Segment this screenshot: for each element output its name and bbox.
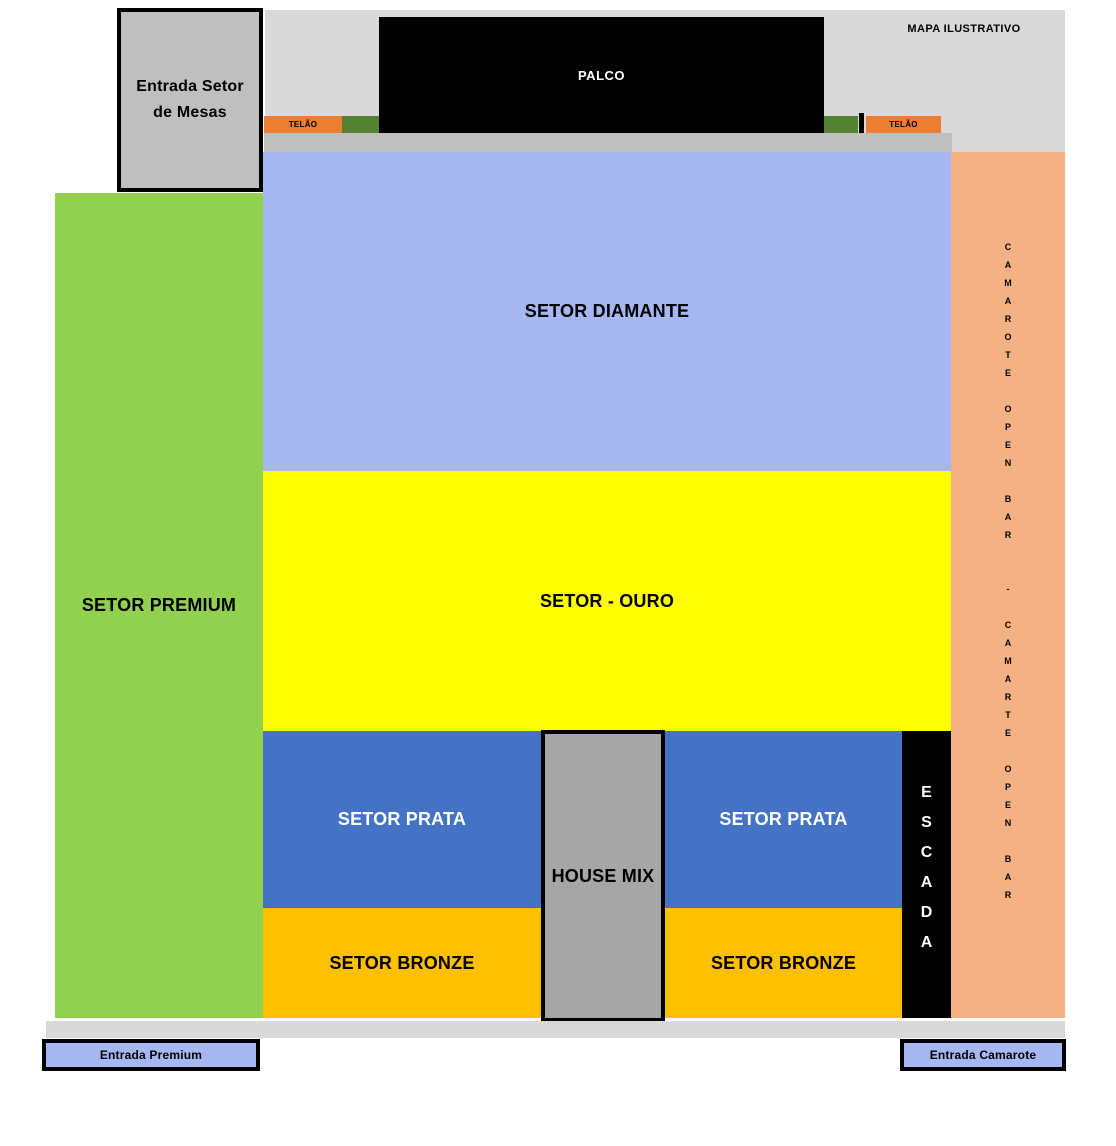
entrance-premium: Entrada Premium xyxy=(42,1039,260,1071)
screen-left-label: TELÃO xyxy=(289,120,318,129)
sector-bronze-right-label: SETOR BRONZE xyxy=(711,953,856,974)
sector-bronze-right: SETOR BRONZE xyxy=(665,908,902,1018)
sector-prata-right-label: SETOR PRATA xyxy=(719,809,847,830)
entrance-mesas: Entrada Setor de Mesas xyxy=(117,8,263,192)
sector-ouro-label: SETOR - OURO xyxy=(540,591,674,612)
house-mix-booth: HOUSE MIX xyxy=(541,730,665,1022)
sector-bronze-left-label: SETOR BRONZE xyxy=(329,953,474,974)
screen-right: TELÃO xyxy=(866,116,941,133)
sector-premium: SETOR PREMIUM xyxy=(55,193,263,1018)
map-watermark: MAPA ILUSTRATIVO xyxy=(864,23,1064,35)
front-walkway xyxy=(264,133,952,152)
sector-diamante-label: SETOR DIAMANTE xyxy=(525,301,689,322)
entrance-mesas-line2: de Mesas xyxy=(153,100,227,126)
sector-prata-right: SETOR PRATA xyxy=(665,731,902,908)
sector-prata-left: SETOR PRATA xyxy=(263,731,541,908)
sector-premium-label: SETOR PREMIUM xyxy=(82,595,236,616)
sector-ouro: SETOR - OURO xyxy=(263,471,951,731)
camarote-open-bar-strip: CAMAROTEOPENBAR-CAMARTEOPENBAR xyxy=(951,152,1065,1018)
sector-bronze-left: SETOR BRONZE xyxy=(263,908,541,1018)
sector-prata-left-label: SETOR PRATA xyxy=(338,809,466,830)
camarote-label-vertical: CAMAROTEOPENBAR-CAMARTEOPENBAR xyxy=(951,238,1065,904)
house-mix-label: HOUSE MIX xyxy=(552,866,655,887)
entrance-premium-label: Entrada Premium xyxy=(100,1048,202,1062)
entrance-mesas-line1: Entrada Setor xyxy=(136,74,244,100)
screen-right-label: TELÃO xyxy=(889,120,918,129)
entrance-camarote: Entrada Camarote xyxy=(900,1039,1066,1071)
bottom-walkway xyxy=(46,1021,1065,1038)
stairs-label-vertical: ESCADA xyxy=(902,778,951,958)
screen-left: TELÃO xyxy=(264,116,342,133)
stage-divider xyxy=(859,113,864,133)
entrance-camarote-label: Entrada Camarote xyxy=(930,1048,1037,1062)
side-box-left xyxy=(342,116,379,133)
sector-diamante: SETOR DIAMANTE xyxy=(263,152,951,471)
stairs-escada: ESCADA xyxy=(902,731,951,1018)
side-box-right xyxy=(824,116,858,133)
stage-label: PALCO xyxy=(578,68,625,83)
venue-map: MAPA ILUSTRATIVO PALCO TELÃO TELÃO Entra… xyxy=(0,0,1116,1146)
stage-palco: PALCO xyxy=(379,17,824,133)
